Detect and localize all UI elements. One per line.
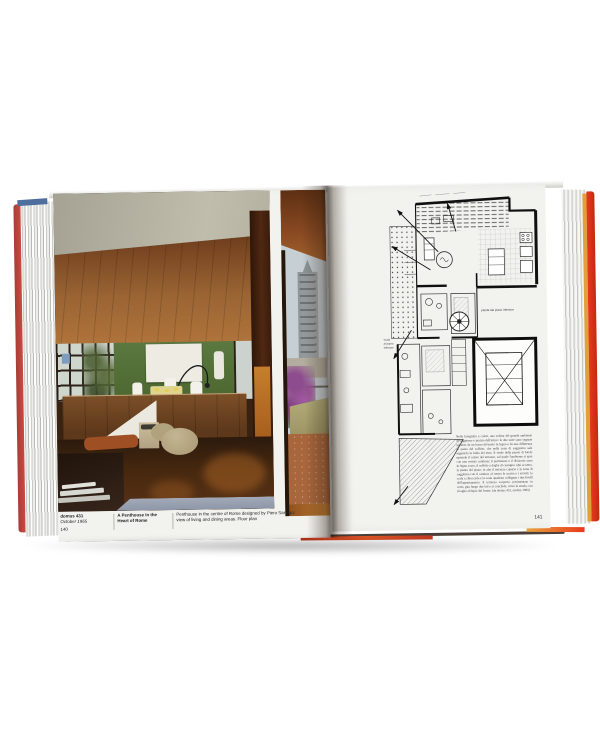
lower-rooms bbox=[398, 339, 467, 434]
upper-terrace bbox=[390, 226, 418, 338]
left-page: domus 431 October 1965 140 A Penthouse i… bbox=[53, 190, 330, 542]
caption-row: domus 431 October 1965 140 A Penthouse i… bbox=[58, 510, 330, 538]
white-lamp-sculpture bbox=[214, 351, 224, 379]
article-text-block: Nella fotografia a colori, una veduta de… bbox=[456, 433, 533, 524]
plan-label-left-3: inferiore bbox=[384, 346, 395, 350]
yellow-plate bbox=[164, 389, 169, 392]
terrace-tiles bbox=[284, 434, 330, 505]
plan-label-center: pianta del piano inferiore bbox=[481, 308, 514, 313]
caption-title-column: A Penthouse in the Heart of Rome bbox=[117, 512, 169, 533]
wood-eave bbox=[280, 190, 326, 263]
yellow-plate bbox=[173, 388, 178, 391]
lower-terrace bbox=[399, 437, 464, 504]
interior-photo bbox=[53, 190, 274, 511]
pillar-orange-panel bbox=[254, 366, 271, 436]
issue-date: October 1965 bbox=[60, 518, 110, 524]
tower-spire bbox=[302, 260, 312, 273]
stair-block bbox=[474, 338, 537, 425]
middle-rooms bbox=[417, 285, 478, 338]
yellow-plate bbox=[154, 388, 159, 391]
blue-bench-edge bbox=[116, 496, 274, 510]
caption-divider bbox=[113, 514, 114, 530]
article-title-line2: Heart of Rome bbox=[117, 518, 169, 524]
caption-description-column: Penthouse in the centre of Rome designed… bbox=[176, 510, 326, 532]
open-book: domus 431 October 1965 140 A Penthouse i… bbox=[13, 182, 585, 553]
spiral-staircase bbox=[450, 312, 469, 331]
balcony-photo bbox=[280, 190, 330, 517]
right-page: pianta del piano inferiore scala al pian… bbox=[327, 184, 550, 531]
kitchen-area bbox=[478, 228, 533, 283]
caption-description-line2: view of living and dining areas. Floor p… bbox=[176, 515, 326, 523]
page-number-left: 140 bbox=[60, 526, 110, 532]
article-body-text: Nella fotografia a colori, una veduta de… bbox=[456, 433, 533, 493]
photo-background: { "left_page": { "caption": { "issue": "… bbox=[0, 0, 600, 750]
book-shadow bbox=[24, 540, 558, 554]
page-number-right: 141 bbox=[534, 514, 542, 520]
dimension-marks bbox=[419, 192, 465, 196]
caption-divider bbox=[172, 513, 173, 529]
